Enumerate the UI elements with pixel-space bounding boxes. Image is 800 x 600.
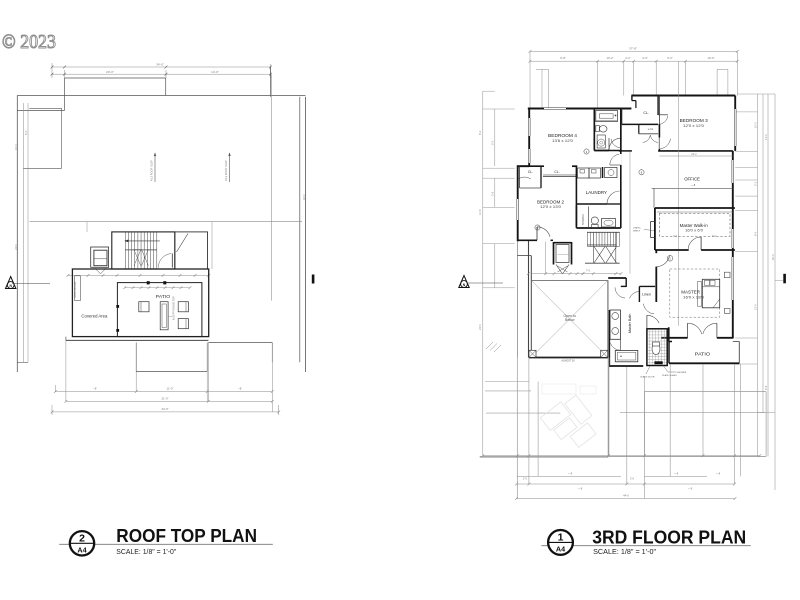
svg-text:Covered Area: Covered Area <box>81 313 108 318</box>
svg-text:16'0 x 6'0: 16'0 x 6'0 <box>685 229 703 233</box>
svg-text:L-CL: L-CL <box>648 127 654 131</box>
svg-text:5'-2: 5'-2 <box>753 181 757 186</box>
svg-text:10'-0: 10'-0 <box>14 144 18 150</box>
svg-text:SHELF: SHELF <box>633 230 641 232</box>
svg-text:CL.: CL. <box>528 170 533 174</box>
svg-text:PATIO: PATIO <box>695 352 711 357</box>
svg-text:7'-0: 7'-0 <box>712 235 717 238</box>
svg-text:34'-0: 34'-0 <box>302 194 306 200</box>
svg-text:LINEN+: LINEN+ <box>633 228 641 230</box>
svg-text:6'-8: 6'-8 <box>764 385 768 390</box>
svg-text:24'-0: 24'-0 <box>478 324 482 330</box>
svg-text:21'-0": 21'-0" <box>161 396 168 400</box>
svg-text:OFFICE: OFFICE <box>684 176 700 181</box>
svg-text:ROOF BELOW: ROOF BELOW <box>74 281 77 298</box>
svg-text:PATIO: PATIO <box>156 294 171 299</box>
svg-text:44'-0: 44'-0 <box>623 494 629 498</box>
svg-text:GLASS DOOR: GLASS DOOR <box>640 376 655 379</box>
svg-text:4:12 ROOF SLOP: 4:12 ROOF SLOP <box>150 160 154 181</box>
svg-text:A4: A4 <box>556 545 565 554</box>
svg-text:9'-2": 9'-2" <box>667 56 673 60</box>
svg-text:7'-0: 7'-0 <box>586 269 591 273</box>
svg-text:37'-8": 37'-8" <box>629 46 637 50</box>
svg-text:10'-0": 10'-0" <box>707 56 714 60</box>
svg-text:A4: A4 <box>77 546 86 555</box>
svg-text:© 2023: © 2023 <box>2 31 56 53</box>
svg-text:~–8: ~–8 <box>688 487 693 491</box>
svg-text:10'-2: 10'-2 <box>753 122 757 128</box>
svg-text:1: 1 <box>558 531 564 543</box>
svg-text:14'-0": 14'-0" <box>211 70 219 74</box>
svg-text:SCALE: 1/8" = 1'-0": SCALE: 1/8" = 1'-0" <box>116 547 176 556</box>
svg-text:16'0 x 18'0: 16'0 x 18'0 <box>683 295 704 299</box>
svg-text:24'-0: 24'-0 <box>14 244 18 250</box>
svg-text:6'-0: 6'-0 <box>24 130 28 135</box>
svg-text:~–8: ~–8 <box>578 487 583 491</box>
svg-text:6'-8": 6'-8" <box>560 56 566 60</box>
svg-text:24'-2: 24'-2 <box>691 153 697 156</box>
svg-text:Below: Below <box>565 318 575 322</box>
svg-text:3'-2": 3'-2" <box>625 56 631 60</box>
svg-text:LAUNDRY: LAUNDRY <box>586 190 607 195</box>
svg-text:Master Walk-in: Master Walk-in <box>680 223 709 228</box>
svg-text:40'-0: 40'-0 <box>771 254 775 260</box>
svg-text:~–8: ~–8 <box>568 471 573 475</box>
svg-text:BEDROOM 3: BEDROOM 3 <box>680 118 708 123</box>
svg-text:3'-0": 3'-0" <box>642 56 648 60</box>
svg-text:2: 2 <box>79 532 85 544</box>
svg-text:12'0 x 13'0: 12'0 x 13'0 <box>540 205 561 209</box>
svg-text:2'-0: 2'-0 <box>523 477 528 480</box>
svg-text:SCALE: 1/8" = 1'-0": SCALE: 1/8" = 1'-0" <box>593 547 656 556</box>
svg-text:BEDROOM 2: BEDROOM 2 <box>537 199 564 204</box>
svg-text:BEDROOM 4: BEDROOM 4 <box>548 133 577 138</box>
svg-text:SHOWER: SHOWER <box>677 372 687 374</box>
svg-text:~8': ~8' <box>93 387 97 391</box>
svg-text:CL.: CL. <box>554 170 559 174</box>
svg-text:PLATE GLASS: PLATE GLASS <box>662 374 677 377</box>
svg-text:SHOWER: SHOWER <box>582 214 585 225</box>
svg-text:13'-0: 13'-0 <box>753 304 757 310</box>
svg-text:~–8: ~–8 <box>716 471 721 475</box>
svg-text:8'-2: 8'-2 <box>478 130 482 135</box>
svg-text:Linen: Linen <box>642 292 651 296</box>
svg-text:3'-6: 3'-6 <box>491 191 495 196</box>
svg-text:~–8: ~–8 <box>691 183 696 187</box>
svg-text:12'0 x 12'0: 12'0 x 12'0 <box>683 124 704 128</box>
svg-text:3RD FLOOR PLAN: 3RD FLOOR PLAN <box>592 528 746 548</box>
svg-text:ROOF TOP PLAN: ROOF TOP PLAN <box>116 526 257 546</box>
svg-text:13'6 x 12'0: 13'6 x 12'0 <box>552 139 573 143</box>
svg-text:8'-0: 8'-0 <box>753 231 757 236</box>
svg-text:4:12 ROOF SLOP: 4:12 ROOF SLOP <box>224 160 228 181</box>
svg-text:11'-0": 11'-0" <box>167 387 174 391</box>
svg-text:34'-0": 34'-0" <box>156 63 164 67</box>
svg-text:34'-0": 34'-0" <box>161 407 168 411</box>
svg-text:7'-0: 7'-0 <box>673 235 678 238</box>
svg-text:CL.: CL. <box>643 111 649 115</box>
svg-text:~8': ~8' <box>238 387 242 391</box>
svg-text:12'-6: 12'-6 <box>478 209 482 215</box>
svg-text:ALMOST 36: ALMOST 36 <box>561 360 575 363</box>
svg-text:8-10 PP ROUND TOP: 8-10 PP ROUND TOP <box>173 296 176 320</box>
svg-text:13'-2": 13'-2" <box>606 56 613 60</box>
svg-text:14'-0: 14'-0 <box>764 134 768 140</box>
svg-text:3'-0: 3'-0 <box>630 477 635 480</box>
svg-text:20'-0": 20'-0" <box>106 70 114 74</box>
svg-text:Master Bath: Master Bath <box>628 314 632 333</box>
svg-text:~–8: ~–8 <box>674 471 679 475</box>
svg-text:5'-0: 5'-0 <box>491 140 495 145</box>
